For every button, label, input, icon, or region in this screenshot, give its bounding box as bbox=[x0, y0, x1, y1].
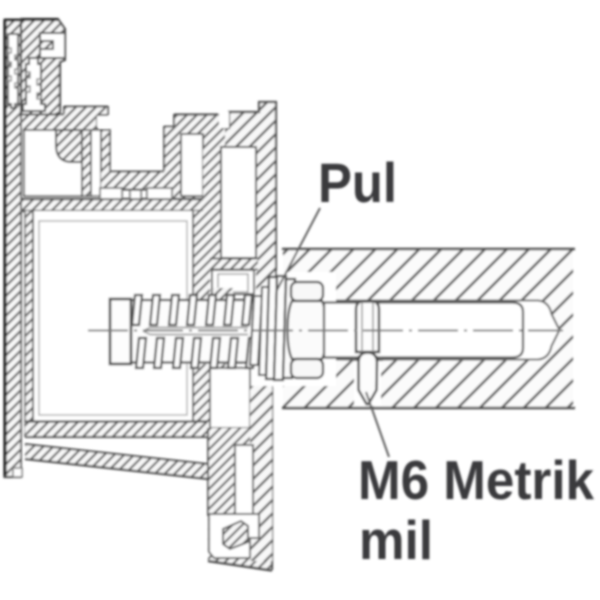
svg-text:mil: mil bbox=[359, 509, 433, 571]
svg-text:M6 Metrik: M6 Metrik bbox=[358, 449, 594, 511]
svg-text:Pul: Pul bbox=[318, 151, 397, 214]
